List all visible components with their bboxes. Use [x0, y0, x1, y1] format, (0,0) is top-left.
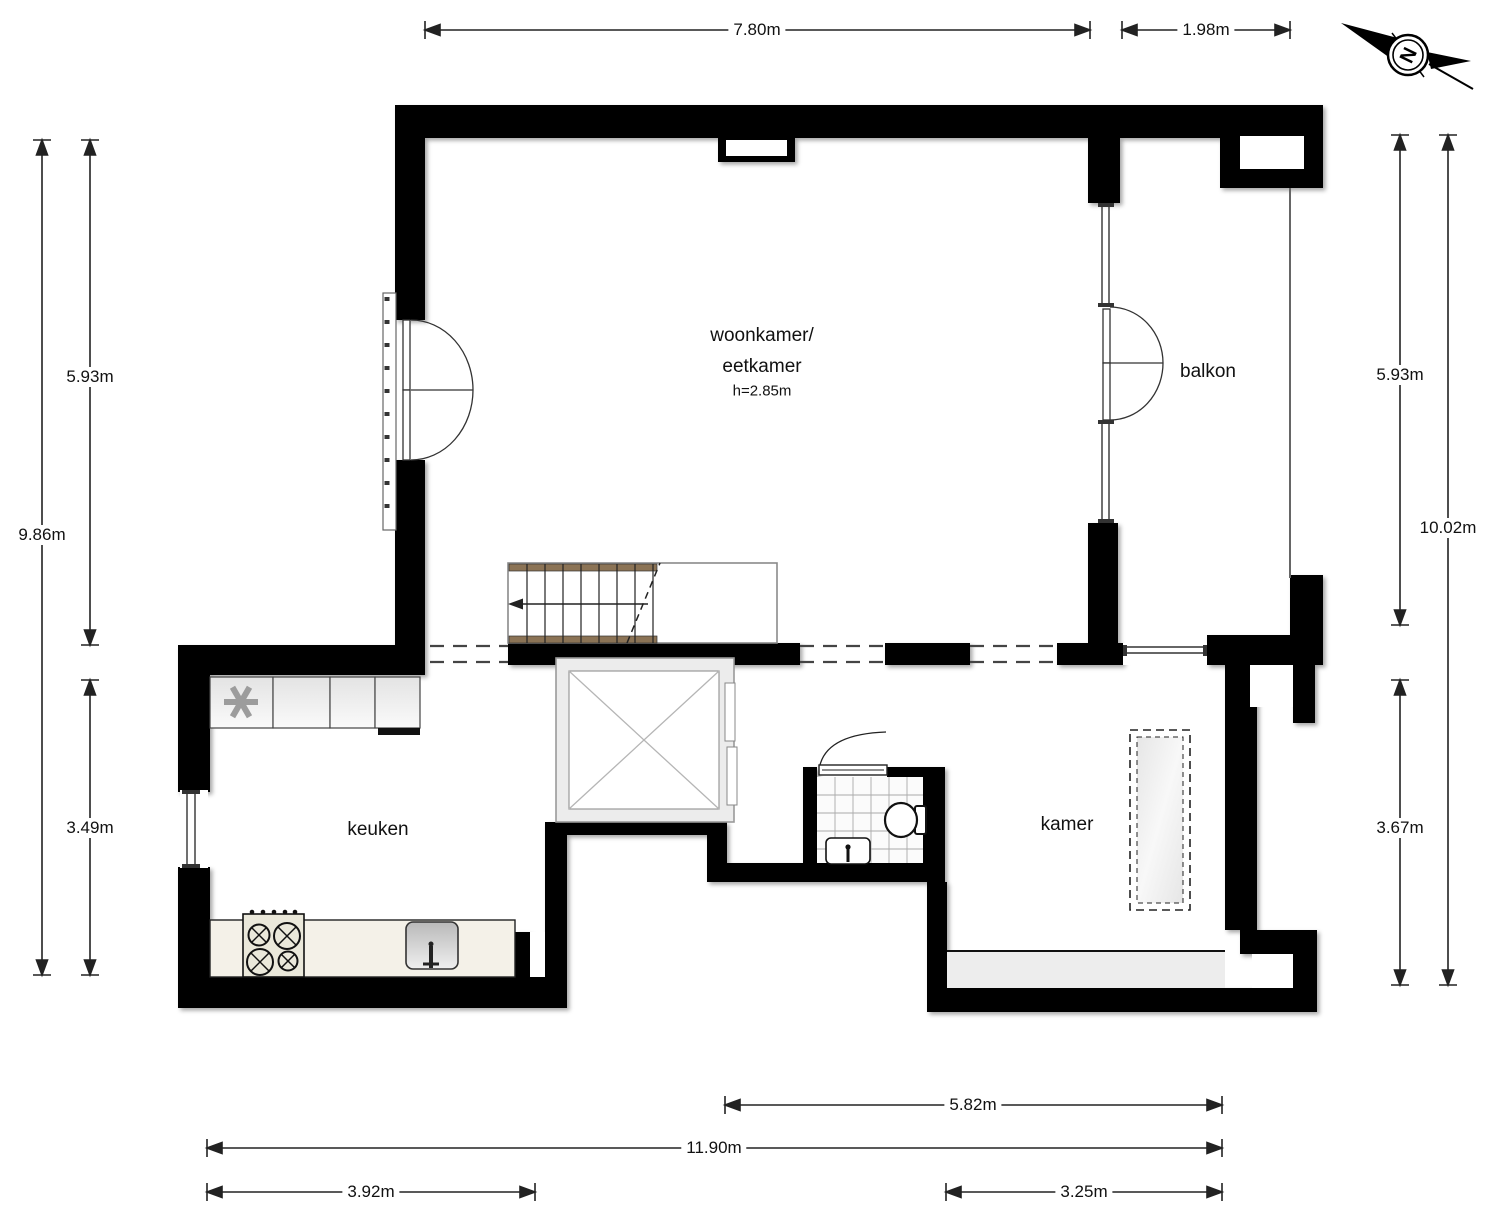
living-room-label-line2: eetkamer: [722, 356, 801, 378]
living-room-height-note: h=2.85m: [733, 383, 792, 400]
washbasin-icon: [826, 838, 870, 864]
elevator-door-panel: [727, 747, 737, 805]
balcony-window-upper: [1098, 203, 1114, 307]
dim-label-left-lower: 3.49m: [61, 818, 118, 838]
toilet-door: [819, 732, 887, 775]
french-balcony-railing: [383, 293, 396, 530]
dim-label-right-lower: 3.67m: [1371, 818, 1428, 838]
dim-left-upper: [81, 140, 99, 645]
kitchen-window: [180, 790, 208, 868]
dim-label-bottom-kitchen: 3.92m: [342, 1182, 399, 1202]
floorplan-canvas: N: [0, 0, 1500, 1227]
dim-label-right-total: 10.02m: [1415, 518, 1482, 538]
bedroom-window-band: [947, 951, 1225, 988]
dim-left-total: [33, 140, 51, 975]
staircase: [508, 563, 777, 643]
kitchen-sink-icon: [406, 922, 458, 969]
toilet-room: [817, 777, 926, 864]
dim-label-top-main: 7.80m: [728, 20, 785, 40]
elevator: [556, 658, 737, 822]
dim-label-bottom-total: 11.90m: [681, 1138, 746, 1158]
floorplan-drawing: N: [0, 0, 1500, 1227]
bedroom-label: kamer: [1041, 814, 1094, 836]
dim-label-bottom-right: 3.25m: [1055, 1182, 1112, 1202]
toilet-icon: [885, 803, 926, 837]
elevator-door-panel: [725, 683, 735, 741]
dim-label-bottom-room: 5.82m: [944, 1095, 1001, 1115]
living-room-french-doors: [403, 320, 473, 460]
balcony-window-lower: [1098, 420, 1114, 523]
dim-right-total: [1439, 135, 1457, 985]
kitchen-label: keuken: [347, 819, 408, 841]
skylight-dashed-object: [1130, 730, 1190, 910]
stove-icon: [243, 910, 304, 977]
compass-north-icon: N: [1341, 23, 1473, 89]
dim-label-right-upper: 5.93m: [1371, 365, 1428, 385]
living-room-label-line1: woonkamer/: [710, 325, 814, 347]
balcony-bottom-window: [1123, 643, 1207, 665]
balcony-french-doors: [1103, 307, 1163, 420]
balcony-label: balkon: [1180, 361, 1236, 383]
dim-label-left-total: 9.86m: [13, 525, 70, 545]
dim-label-left-upper: 5.93m: [61, 367, 118, 387]
dim-label-top-balcony: 1.98m: [1177, 20, 1234, 40]
